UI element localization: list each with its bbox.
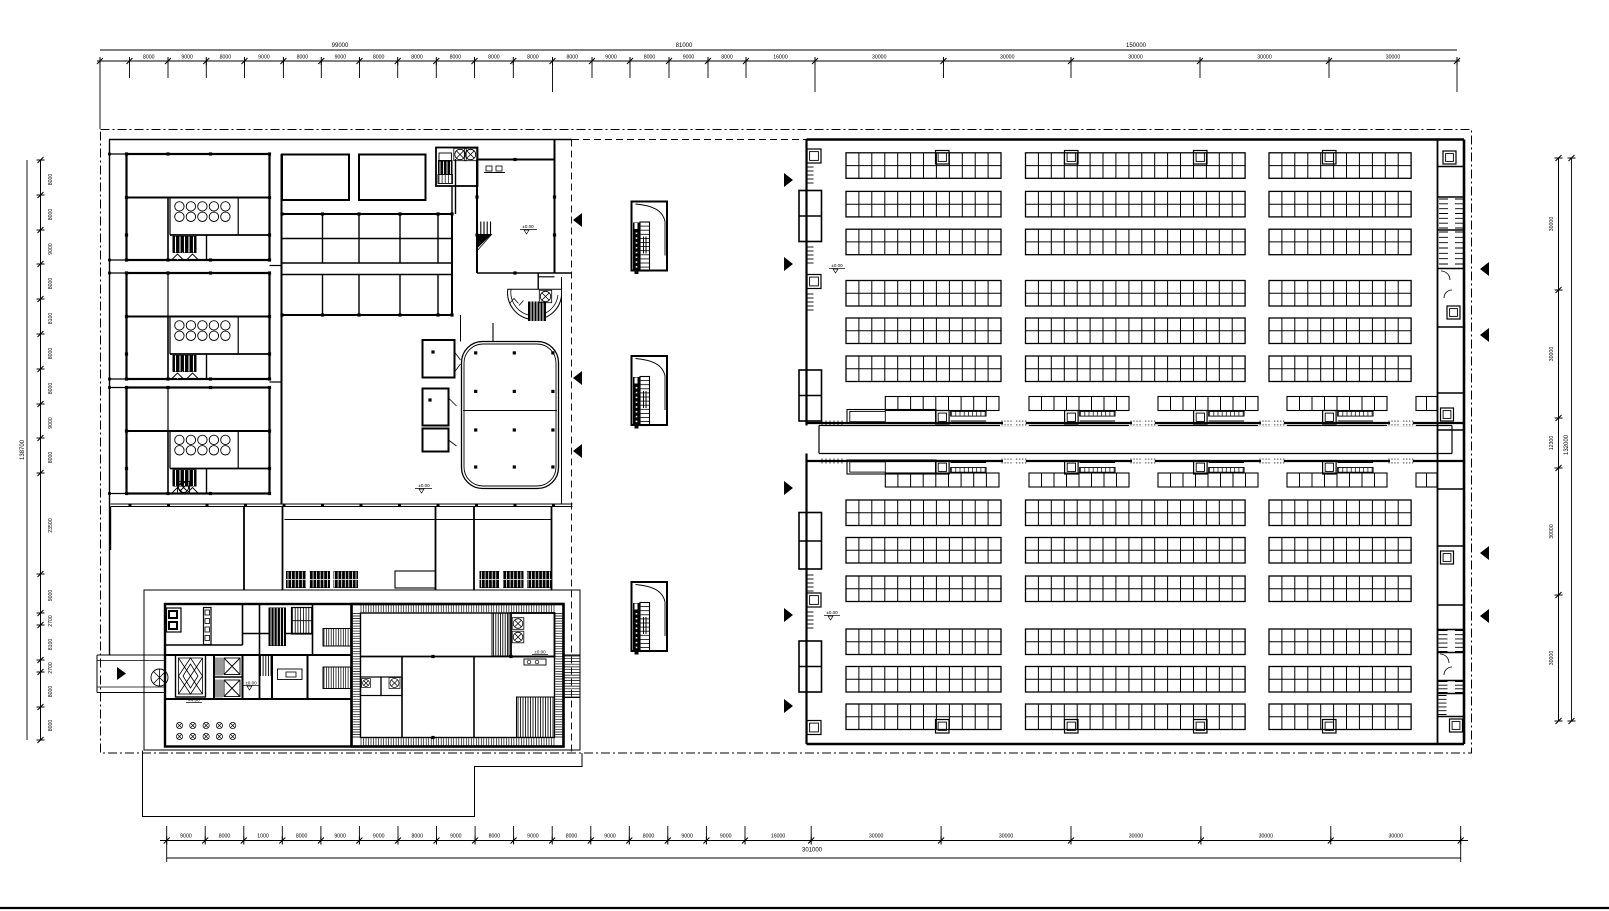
svg-text:9000: 9000 [334,834,346,840]
svg-text:8000: 8000 [527,55,539,61]
svg-text:30000: 30000 [1259,834,1274,840]
svg-text:8000: 8000 [48,209,54,221]
svg-text:16000: 16000 [771,834,786,840]
svg-text:8000: 8000 [48,720,54,732]
svg-text:30000: 30000 [1549,524,1555,539]
svg-text:30000: 30000 [1389,834,1404,840]
svg-text:81000: 81000 [676,43,693,49]
svg-text:8100: 8100 [48,639,54,651]
svg-text:138700: 138700 [20,439,26,460]
svg-text:8100: 8100 [48,313,54,325]
svg-text:150000: 150000 [1126,43,1147,49]
svg-text:30000: 30000 [869,834,884,840]
svg-text:8000: 8000 [48,348,54,360]
svg-text:9000: 9000 [373,834,385,840]
svg-text:132000: 132000 [1564,434,1570,455]
svg-text:8000: 8000 [566,55,578,61]
svg-text:8000: 8000 [721,55,733,61]
svg-text:±0.00: ±0.00 [418,483,430,488]
svg-text:9000: 9000 [335,55,347,61]
svg-text:23500: 23500 [48,518,54,533]
svg-text:12300: 12300 [1549,436,1555,451]
svg-text:±0.00: ±0.00 [245,681,257,686]
svg-text:8000: 8000 [297,55,309,61]
svg-text:9000: 9000 [604,834,616,840]
svg-text:8000: 8000 [48,174,54,186]
svg-text:9000: 9000 [258,55,270,61]
svg-text:8000: 8000 [488,55,500,61]
svg-text:9000: 9000 [527,834,539,840]
svg-text:9000: 9000 [720,834,732,840]
svg-text:9000: 9000 [605,55,617,61]
svg-text:30000: 30000 [1386,55,1401,61]
svg-text:9000: 9000 [181,55,193,61]
svg-text:30000: 30000 [1000,55,1015,61]
svg-text:16000: 16000 [773,55,788,61]
svg-text:2700: 2700 [48,615,54,627]
svg-text:8000: 8000 [450,55,462,61]
svg-text:8000: 8000 [220,55,232,61]
svg-text:9000: 9000 [48,243,54,255]
svg-text:±0.00: ±0.00 [522,224,534,229]
svg-text:30000: 30000 [1128,55,1143,61]
svg-text:#4.00: #4.00 [188,698,200,703]
svg-text:8000: 8000 [489,834,501,840]
svg-text:9000: 9000 [48,417,54,429]
svg-text:8000: 8000 [566,834,578,840]
svg-text:99000: 99000 [332,43,349,49]
svg-text:8000: 8000 [643,834,655,840]
svg-text:8000: 8000 [48,452,54,464]
svg-text:30000: 30000 [1257,55,1272,61]
svg-text:9000: 9000 [48,590,54,602]
svg-text:30000: 30000 [1549,217,1555,232]
svg-text:8000: 8000 [143,55,155,61]
svg-text:8000: 8000 [411,55,423,61]
svg-text:9000: 9000 [683,55,695,61]
svg-text:8000: 8000 [373,55,385,61]
svg-text:9000: 9000 [450,834,462,840]
svg-text:±0.00: ±0.00 [826,610,838,615]
svg-text:9000: 9000 [180,834,192,840]
svg-text:30000: 30000 [1549,347,1555,362]
svg-text:2700: 2700 [48,662,54,674]
svg-text:8000: 8000 [48,278,54,290]
svg-text:30000: 30000 [999,834,1014,840]
svg-text:8000: 8000 [296,834,308,840]
svg-text:9000: 9000 [681,834,693,840]
svg-text:8000: 8000 [48,686,54,698]
svg-text:8000: 8000 [48,383,54,395]
svg-text:±0.00: ±0.00 [831,263,843,268]
svg-text:1000: 1000 [257,834,269,840]
svg-text:30000: 30000 [872,55,887,61]
svg-text:301000: 301000 [802,848,823,854]
svg-text:8000: 8000 [219,834,231,840]
svg-text:8000: 8000 [411,834,423,840]
svg-text:30000: 30000 [1549,651,1555,666]
svg-text:±0.00: ±0.00 [534,650,546,655]
svg-text:30000: 30000 [1129,834,1144,840]
svg-text:8000: 8000 [644,55,656,61]
